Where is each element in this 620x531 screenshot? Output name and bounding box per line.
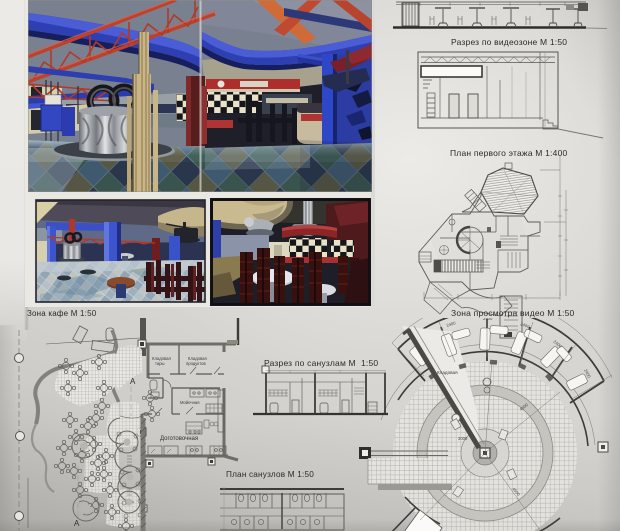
svg-text:2400: 2400 [446, 320, 457, 328]
svg-text:Кладовая: Кладовая [437, 370, 458, 375]
svg-text:3000: 3000 [458, 436, 468, 441]
svg-text:тары: тары [155, 361, 165, 366]
svg-text:А: А [74, 519, 80, 528]
svg-text:А: А [130, 377, 136, 386]
svg-text:продуктов: продуктов [186, 361, 206, 366]
svg-text:Доготовочная: Доготовочная [160, 436, 198, 442]
svg-text:Мойечная: Мойечная [180, 400, 199, 405]
